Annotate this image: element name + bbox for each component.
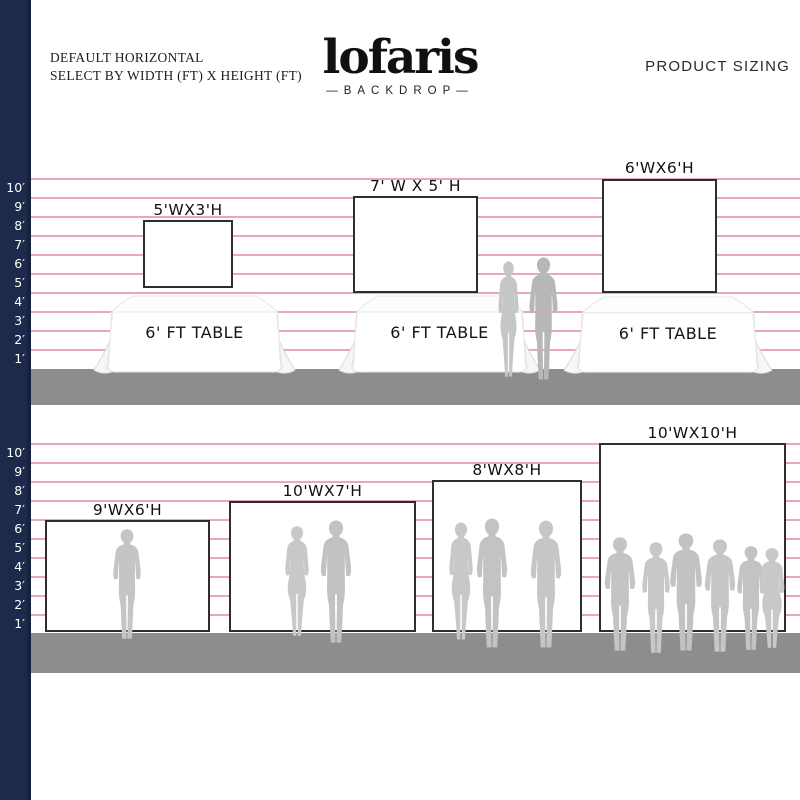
- brand-name: lofaris: [290, 33, 510, 83]
- table-3: 6' FT TABLE: [562, 295, 774, 380]
- backdrop-7x5: [353, 196, 478, 293]
- ruler-tick-label: 9′: [0, 464, 25, 480]
- ruler-tick-label: 6′: [0, 256, 25, 272]
- subtitle-line1: DEFAULT HORIZONTAL: [50, 49, 302, 67]
- ruler-tick-label: 7′: [0, 237, 25, 253]
- backdrop-label: 10'WX7'H: [229, 482, 416, 500]
- ruler-tick-label: 4′: [0, 559, 25, 575]
- table-label: 6' FT TABLE: [92, 323, 297, 342]
- ruler-tick-label: 8′: [0, 218, 25, 234]
- ruler-tick-label: 7′: [0, 502, 25, 518]
- backdrop-label: 8'WX8'H: [432, 461, 582, 479]
- ruler-tick-label: 9′: [0, 199, 25, 215]
- brand-logo: lofaris —BACKDROP—: [290, 33, 510, 97]
- man-silhouette-icon: [523, 255, 564, 382]
- woman-silhouette-icon: [753, 546, 791, 650]
- ruler-tick-label: 10′: [0, 445, 25, 461]
- ruler-tick-label: 5′: [0, 275, 25, 291]
- product-sizing-page: DEFAULT HORIZONTAL SELECT BY WIDTH (FT) …: [0, 0, 800, 800]
- backdrop-label: 6'WX6'H: [592, 159, 727, 177]
- ruler-tick-label: 2′: [0, 597, 25, 613]
- ruler-tick-label: 3′: [0, 313, 25, 329]
- subtitle-line2: SELECT BY WIDTH (FT) X HEIGHT (FT): [50, 67, 302, 85]
- ruler-tick-label: 1′: [0, 351, 25, 367]
- brand-subtext: —BACKDROP—: [290, 85, 510, 97]
- backdrop-5x3: [143, 220, 233, 288]
- backdrop-label: 10'WX10'H: [599, 424, 786, 442]
- backdrop-label: 7' W X 5' H: [343, 177, 488, 195]
- ruler-tick-label: 5′: [0, 540, 25, 556]
- ruler-tick-label: 2′: [0, 332, 25, 348]
- ruler-tick-label: 1′: [0, 616, 25, 632]
- backdrop-6x6: [602, 179, 717, 293]
- man-silhouette-icon: [470, 516, 514, 650]
- man-silhouette-icon: [314, 518, 358, 645]
- header-subtitle: DEFAULT HORIZONTAL SELECT BY WIDTH (FT) …: [50, 49, 302, 85]
- ruler-tick-label: 10′: [0, 180, 25, 196]
- ruler-tick-label: 8′: [0, 483, 25, 499]
- man-silhouette-icon: [107, 527, 147, 641]
- ruler-bar: [0, 0, 31, 800]
- table-label: 6' FT TABLE: [562, 324, 774, 343]
- man-silhouette-icon: [524, 518, 568, 650]
- ruler-tick-label: 6′: [0, 521, 25, 537]
- backdrop-label: 9'WX6'H: [45, 501, 210, 519]
- backdrop-label: 5'WX3'H: [143, 201, 233, 219]
- woman-silhouette-icon: [279, 524, 315, 638]
- ruler-tick-label: 4′: [0, 294, 25, 310]
- table-1: 6' FT TABLE: [92, 294, 297, 380]
- ruler-tick-label: 3′: [0, 578, 25, 594]
- woman-silhouette-icon: [493, 259, 524, 379]
- page-title: PRODUCT SIZING: [645, 58, 790, 75]
